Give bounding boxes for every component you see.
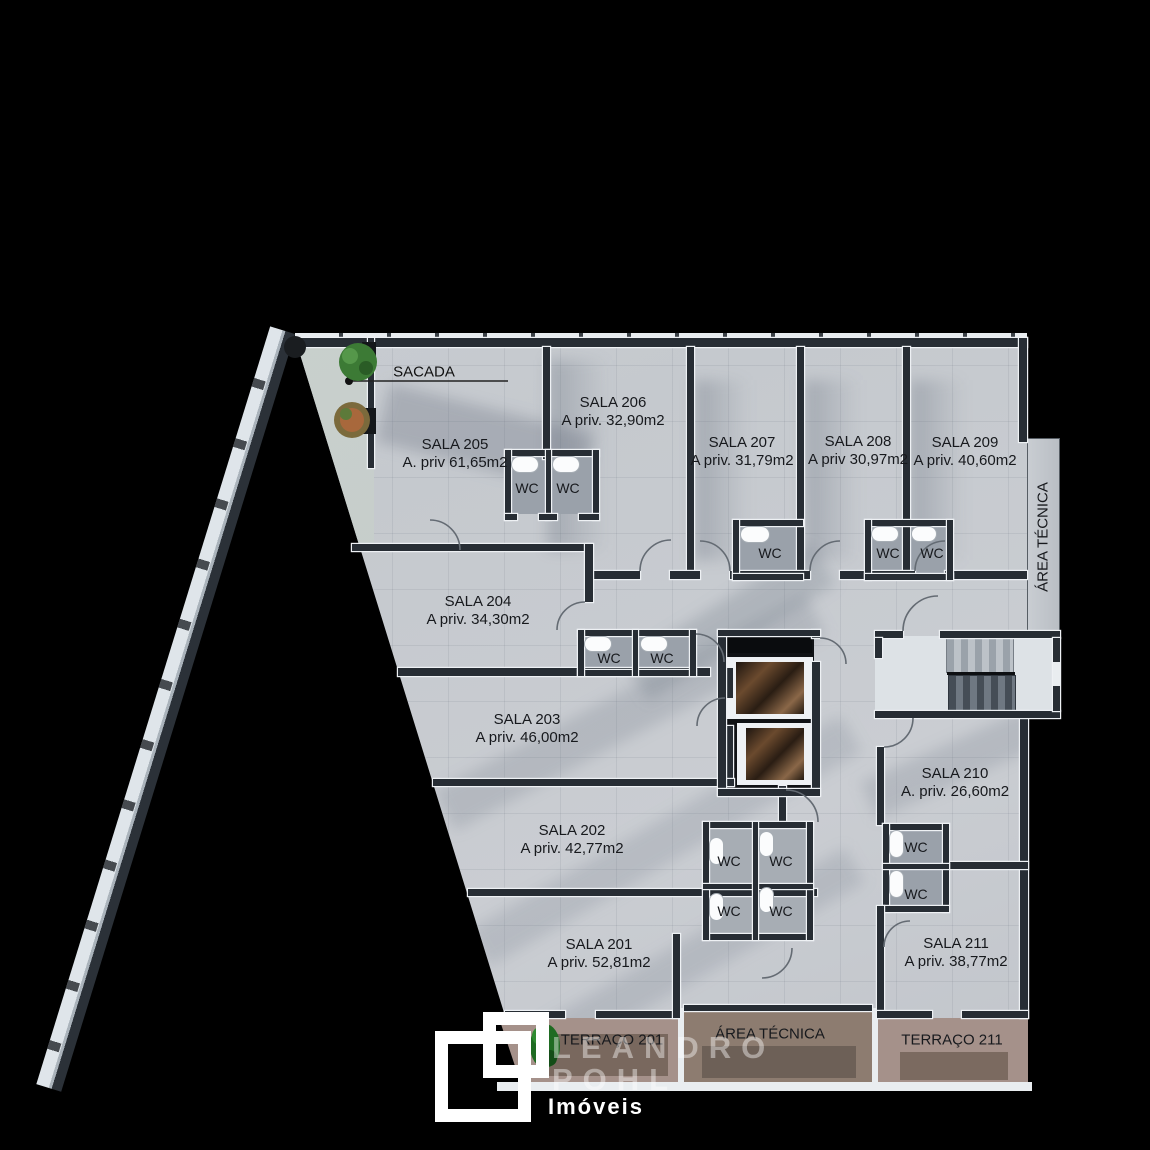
door-arc bbox=[700, 541, 730, 571]
room-name: SALA 206 bbox=[561, 394, 664, 412]
room-area: A priv. 46,00m2 bbox=[475, 729, 578, 747]
room-area: A priv. 32,90m2 bbox=[561, 412, 664, 430]
room-name: SALA 202 bbox=[520, 822, 623, 840]
wc-label: WC bbox=[769, 853, 792, 869]
wc-label: WC bbox=[597, 650, 620, 666]
room-label-sala-205: SALA 205 A. priv 61,65m2 bbox=[402, 436, 507, 472]
room-area: A priv 30,97m2 bbox=[808, 451, 908, 469]
room-area: A priv. 38,77m2 bbox=[904, 953, 1007, 971]
room-label-sala-207: SALA 207 A priv. 31,79m2 bbox=[690, 434, 793, 470]
floor-plan-canvas: SALA 205 A. priv 61,65m2 SALA 206 A priv… bbox=[0, 0, 1150, 1150]
watermark-name-line1: LEANDRO bbox=[552, 1030, 775, 1066]
room-name: SALA 207 bbox=[690, 434, 793, 452]
terraco-211-label: TERRAÇO 211 bbox=[901, 1032, 1002, 1049]
tree-icon bbox=[339, 343, 377, 381]
room-label-sala-209: SALA 209 A priv. 40,60m2 bbox=[913, 434, 1016, 470]
door-arc bbox=[557, 602, 585, 630]
wc-label: WC bbox=[717, 903, 740, 919]
sacada-label: SACADA bbox=[393, 364, 455, 381]
door-arc bbox=[786, 790, 818, 822]
room-label-sala-208: SALA 208 A priv 30,97m2 bbox=[808, 433, 908, 469]
corner-column-marker bbox=[284, 336, 306, 358]
room-name: SALA 211 bbox=[904, 935, 1007, 953]
door-arc bbox=[884, 718, 913, 747]
room-area: A priv. 34,30m2 bbox=[426, 611, 529, 629]
wc-label: WC bbox=[758, 545, 781, 561]
door-arc bbox=[430, 520, 460, 550]
area-tecnica-right-label: ÁREA TÉCNICA bbox=[1035, 482, 1052, 592]
room-name: SALA 201 bbox=[547, 936, 650, 954]
room-area: A. priv 61,65m2 bbox=[402, 454, 507, 472]
wc-label: WC bbox=[717, 853, 740, 869]
room-name: SALA 210 bbox=[901, 765, 1009, 783]
room-label-sala-211: SALA 211 A priv. 38,77m2 bbox=[904, 935, 1007, 971]
room-area: A priv. 52,81m2 bbox=[547, 954, 650, 972]
brand-logo-square-small bbox=[483, 1012, 549, 1078]
plan-overlay bbox=[0, 0, 1150, 1150]
door-arc bbox=[820, 638, 846, 664]
wc-label: WC bbox=[769, 903, 792, 919]
room-name: SALA 208 bbox=[808, 433, 908, 451]
watermark-tagline: Imóveis bbox=[548, 1094, 644, 1120]
wc-label: WC bbox=[876, 545, 899, 561]
door-arc bbox=[903, 596, 938, 631]
door-arc bbox=[640, 540, 671, 571]
watermark-name-line2: POHL bbox=[552, 1062, 678, 1098]
door-arc bbox=[696, 634, 724, 662]
wc-label: WC bbox=[556, 480, 579, 496]
room-name: SALA 203 bbox=[475, 711, 578, 729]
wc-label: WC bbox=[920, 545, 943, 561]
door-arc bbox=[810, 541, 840, 571]
wc-label: WC bbox=[904, 886, 927, 902]
wc-label: WC bbox=[650, 650, 673, 666]
room-area: A priv. 40,60m2 bbox=[913, 452, 1016, 470]
tree-icon bbox=[334, 402, 370, 438]
room-name: SALA 209 bbox=[913, 434, 1016, 452]
room-area: A priv. 31,79m2 bbox=[690, 452, 793, 470]
room-label-sala-203: SALA 203 A priv. 46,00m2 bbox=[475, 711, 578, 747]
wc-label: WC bbox=[515, 480, 538, 496]
room-area: A priv. 42,77m2 bbox=[520, 840, 623, 858]
room-label-sala-201: SALA 201 A priv. 52,81m2 bbox=[547, 936, 650, 972]
door-arc bbox=[762, 948, 792, 978]
room-label-sala-202: SALA 202 A priv. 42,77m2 bbox=[520, 822, 623, 858]
room-label-sala-206: SALA 206 A priv. 32,90m2 bbox=[561, 394, 664, 430]
room-name: SALA 205 bbox=[402, 436, 507, 454]
wc-label: WC bbox=[904, 839, 927, 855]
room-name: SALA 204 bbox=[426, 593, 529, 611]
room-label-sala-210: SALA 210 A. priv. 26,60m2 bbox=[901, 765, 1009, 801]
room-label-sala-204: SALA 204 A priv. 34,30m2 bbox=[426, 593, 529, 629]
room-area: A. priv. 26,60m2 bbox=[901, 783, 1009, 801]
door-arc bbox=[697, 698, 725, 726]
